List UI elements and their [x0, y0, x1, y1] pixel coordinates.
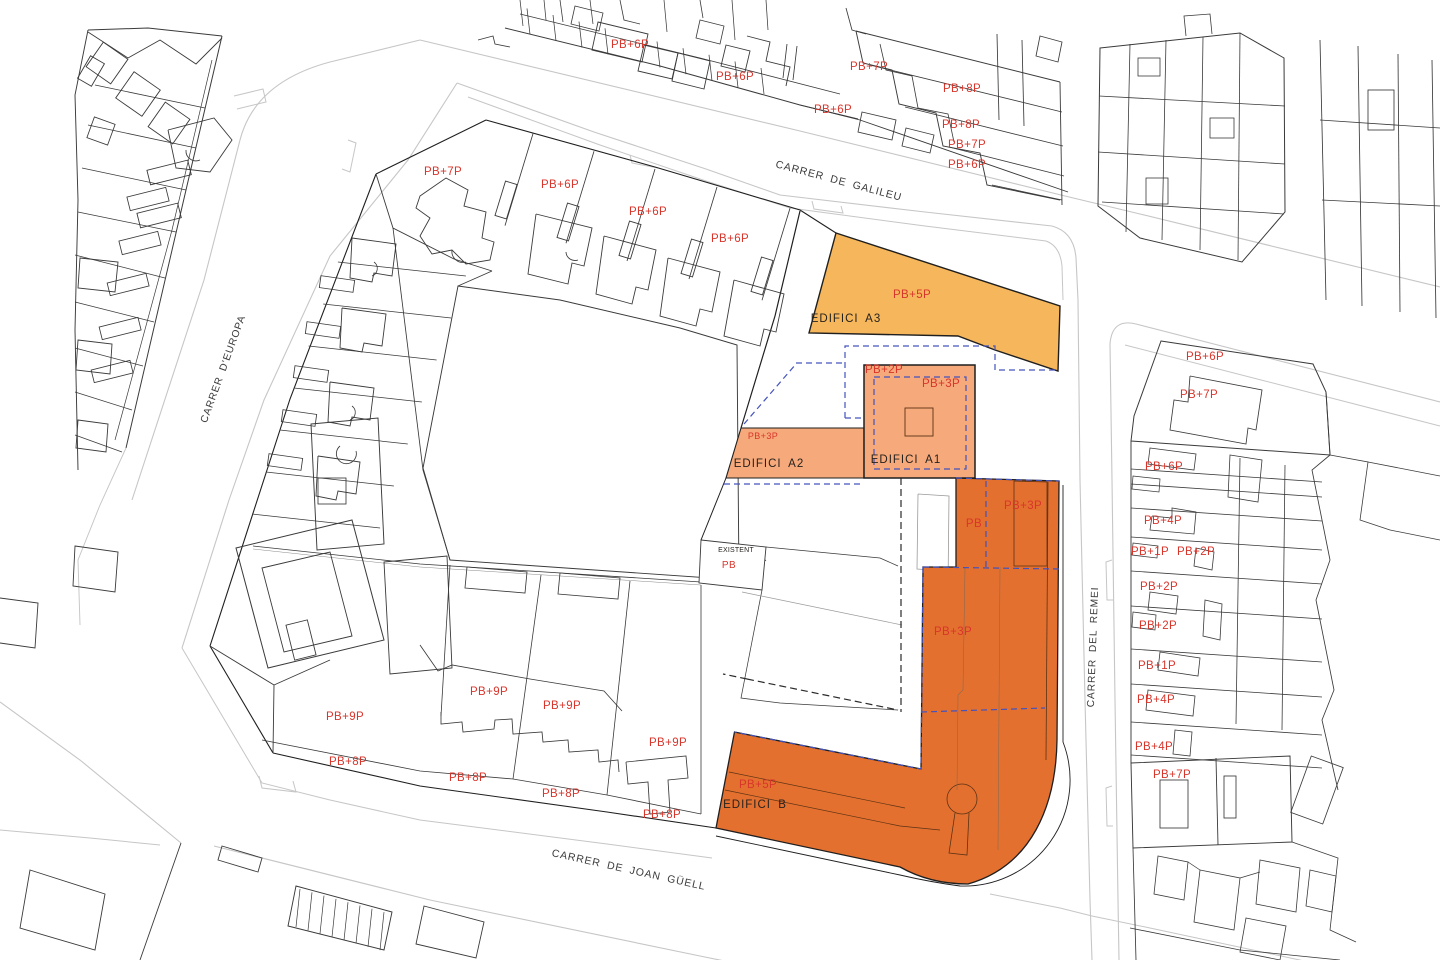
svg-text:PB+4P: PB+4P [1144, 515, 1182, 527]
svg-text:PB+7P: PB+7P [1180, 389, 1218, 401]
svg-text:PB+3P: PB+3P [748, 431, 778, 441]
svg-text:PB+4P: PB+4P [1137, 694, 1175, 706]
svg-text:PB: PB [722, 560, 736, 571]
svg-text:PB+3P: PB+3P [922, 378, 960, 390]
svg-text:PB+6P: PB+6P [1145, 461, 1183, 473]
svg-text:PB+8P: PB+8P [643, 809, 681, 821]
svg-text:PB+2P: PB+2P [1139, 620, 1177, 632]
svg-text:PB+8P: PB+8P [942, 119, 980, 131]
svg-text:PB+2P: PB+2P [865, 364, 903, 376]
svg-text:PB+9P: PB+9P [326, 711, 364, 723]
svg-text:PB+6P: PB+6P [629, 206, 667, 218]
svg-text:PB: PB [966, 518, 982, 530]
svg-text:EDIFICI A3: EDIFICI A3 [811, 313, 882, 325]
svg-text:PB+6P: PB+6P [711, 233, 749, 245]
svg-text:PB+9P: PB+9P [470, 686, 508, 698]
svg-text:PB+5P: PB+5P [893, 289, 931, 301]
svg-text:PB+3P: PB+3P [1004, 500, 1042, 512]
svg-text:PB+6P: PB+6P [814, 104, 852, 116]
svg-text:PB+8P: PB+8P [542, 788, 580, 800]
svg-text:PB+1P: PB+1P [1138, 660, 1176, 672]
svg-text:PB+7P: PB+7P [850, 61, 888, 73]
svg-text:PB+6P: PB+6P [1186, 351, 1224, 363]
svg-text:PB+9P: PB+9P [649, 737, 687, 749]
svg-text:PB+6P: PB+6P [611, 39, 649, 51]
svg-text:PB+3P: PB+3P [934, 626, 972, 638]
svg-text:PB+6P: PB+6P [716, 71, 754, 83]
svg-text:PB+6P: PB+6P [948, 159, 986, 171]
svg-text:PB+8P: PB+8P [329, 756, 367, 768]
svg-text:PB+9P: PB+9P [543, 700, 581, 712]
svg-text:EDIFICI A2: EDIFICI A2 [734, 458, 805, 470]
svg-text:PB+7P: PB+7P [1153, 769, 1191, 781]
svg-text:PB+2P: PB+2P [1140, 581, 1178, 593]
svg-text:EXISTENT: EXISTENT [718, 547, 754, 554]
svg-text:PB+5P: PB+5P [739, 779, 777, 791]
svg-text:EDIFICI B: EDIFICI B [723, 799, 787, 811]
svg-text:PB+2P: PB+2P [1177, 546, 1215, 558]
svg-text:PB+7P: PB+7P [424, 166, 462, 178]
svg-text:PB+6P: PB+6P [541, 179, 579, 191]
svg-text:PB+7P: PB+7P [948, 139, 986, 151]
svg-text:PB+8P: PB+8P [449, 772, 487, 784]
svg-text:EDIFICI A1: EDIFICI A1 [871, 454, 942, 466]
svg-text:PB+4P: PB+4P [1135, 741, 1173, 753]
svg-text:PB+8P: PB+8P [943, 83, 981, 95]
svg-text:PB+1P: PB+1P [1131, 546, 1169, 558]
